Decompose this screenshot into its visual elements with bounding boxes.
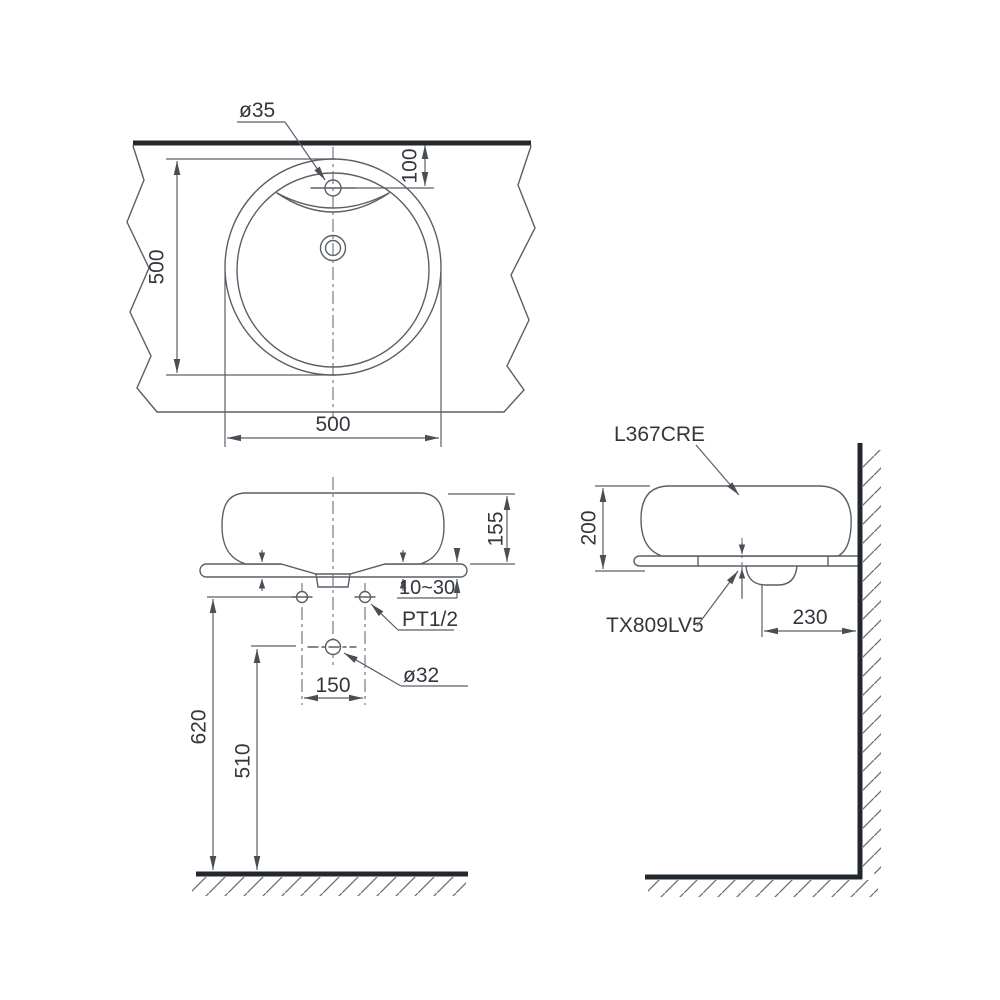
dim-text-bowl-depth: 500 (146, 249, 169, 284)
dim-text-basin-height: 155 (485, 511, 508, 546)
floor-hatching-front (192, 877, 466, 896)
label-drain-dia: ø32 (344, 653, 468, 687)
dim-drain-height: 510 (232, 646, 297, 870)
dim-hole-spacing: 150 (304, 674, 363, 698)
label-basin-model: L367CRE (614, 423, 739, 495)
front-view: 155 10~30 PT1/2 ø32 150 (188, 477, 516, 896)
basin-side-profile (641, 486, 851, 556)
label-text-basin-model: L367CRE (614, 423, 705, 446)
wall-hatching (863, 450, 881, 874)
dim-text-total-height: 200 (578, 510, 601, 545)
counter-slab-side (634, 556, 858, 566)
dim-drain-to-wall: 230 (762, 585, 856, 637)
dim-supply-height: 620 (188, 597, 296, 870)
label-drain-fitting-model: TX809LV5 (606, 571, 738, 637)
dim-text-faucet-offset: 100 (399, 148, 422, 183)
dim-text-drain-height: 510 (232, 743, 255, 778)
label-supply-thread: PT1/2 (371, 604, 458, 631)
dim-text-counter-thickness: 10~30 (399, 577, 455, 599)
label-text-supply-thread: PT1/2 (402, 608, 458, 631)
dim-basin-height: 155 (448, 494, 515, 564)
dim-text-hole-spacing: 150 (315, 674, 350, 697)
basin-installation-drawing: 100 500 500 ø35 (0, 0, 1000, 1000)
dim-text-supply-height: 620 (188, 709, 211, 744)
label-text-drain-fitting-model: TX809LV5 (606, 614, 704, 637)
technical-drawing-canvas: 100 500 500 ø35 (0, 0, 1000, 1000)
label-text-drain-dia: ø32 (403, 664, 439, 687)
dim-text-bowl-width: 500 (315, 413, 350, 436)
floor-hatching-side (648, 880, 878, 897)
dim-text-drain-to-wall: 230 (792, 606, 827, 629)
side-view: L367CRE TX809LV5 200 230 (578, 423, 882, 897)
label-text-faucet-hole-dia: ø35 (239, 99, 275, 122)
plan-view: 100 500 500 ø35 (127, 99, 535, 447)
countertop-break-line-right (504, 146, 535, 412)
drain-fitting-side (746, 566, 797, 585)
